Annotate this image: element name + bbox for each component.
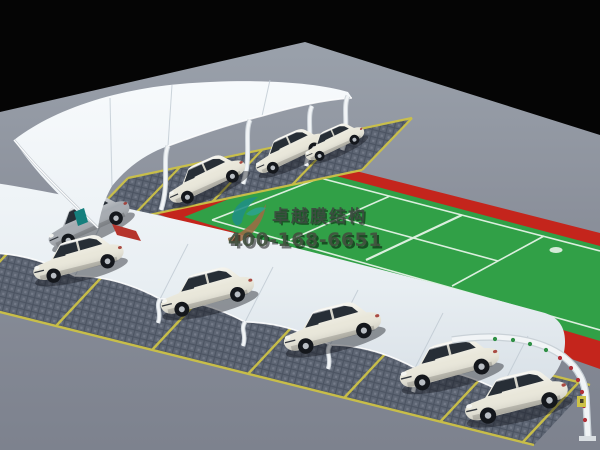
- render-canvas: 卓越膜结构 卓越膜结构 400-168-6651 400-168-6651: [0, 0, 600, 450]
- membrane-carport-render: 卓越膜结构 卓越膜结构 400-168-6651 400-168-6651: [0, 0, 600, 450]
- watermark-phone-text: 400-168-6651: [228, 229, 382, 251]
- net-post-highlight: [550, 247, 563, 253]
- arch-base-plate: [579, 436, 596, 441]
- watermark-brand-text: 卓越膜结构: [272, 206, 367, 227]
- post-sign-mark: [580, 399, 584, 403]
